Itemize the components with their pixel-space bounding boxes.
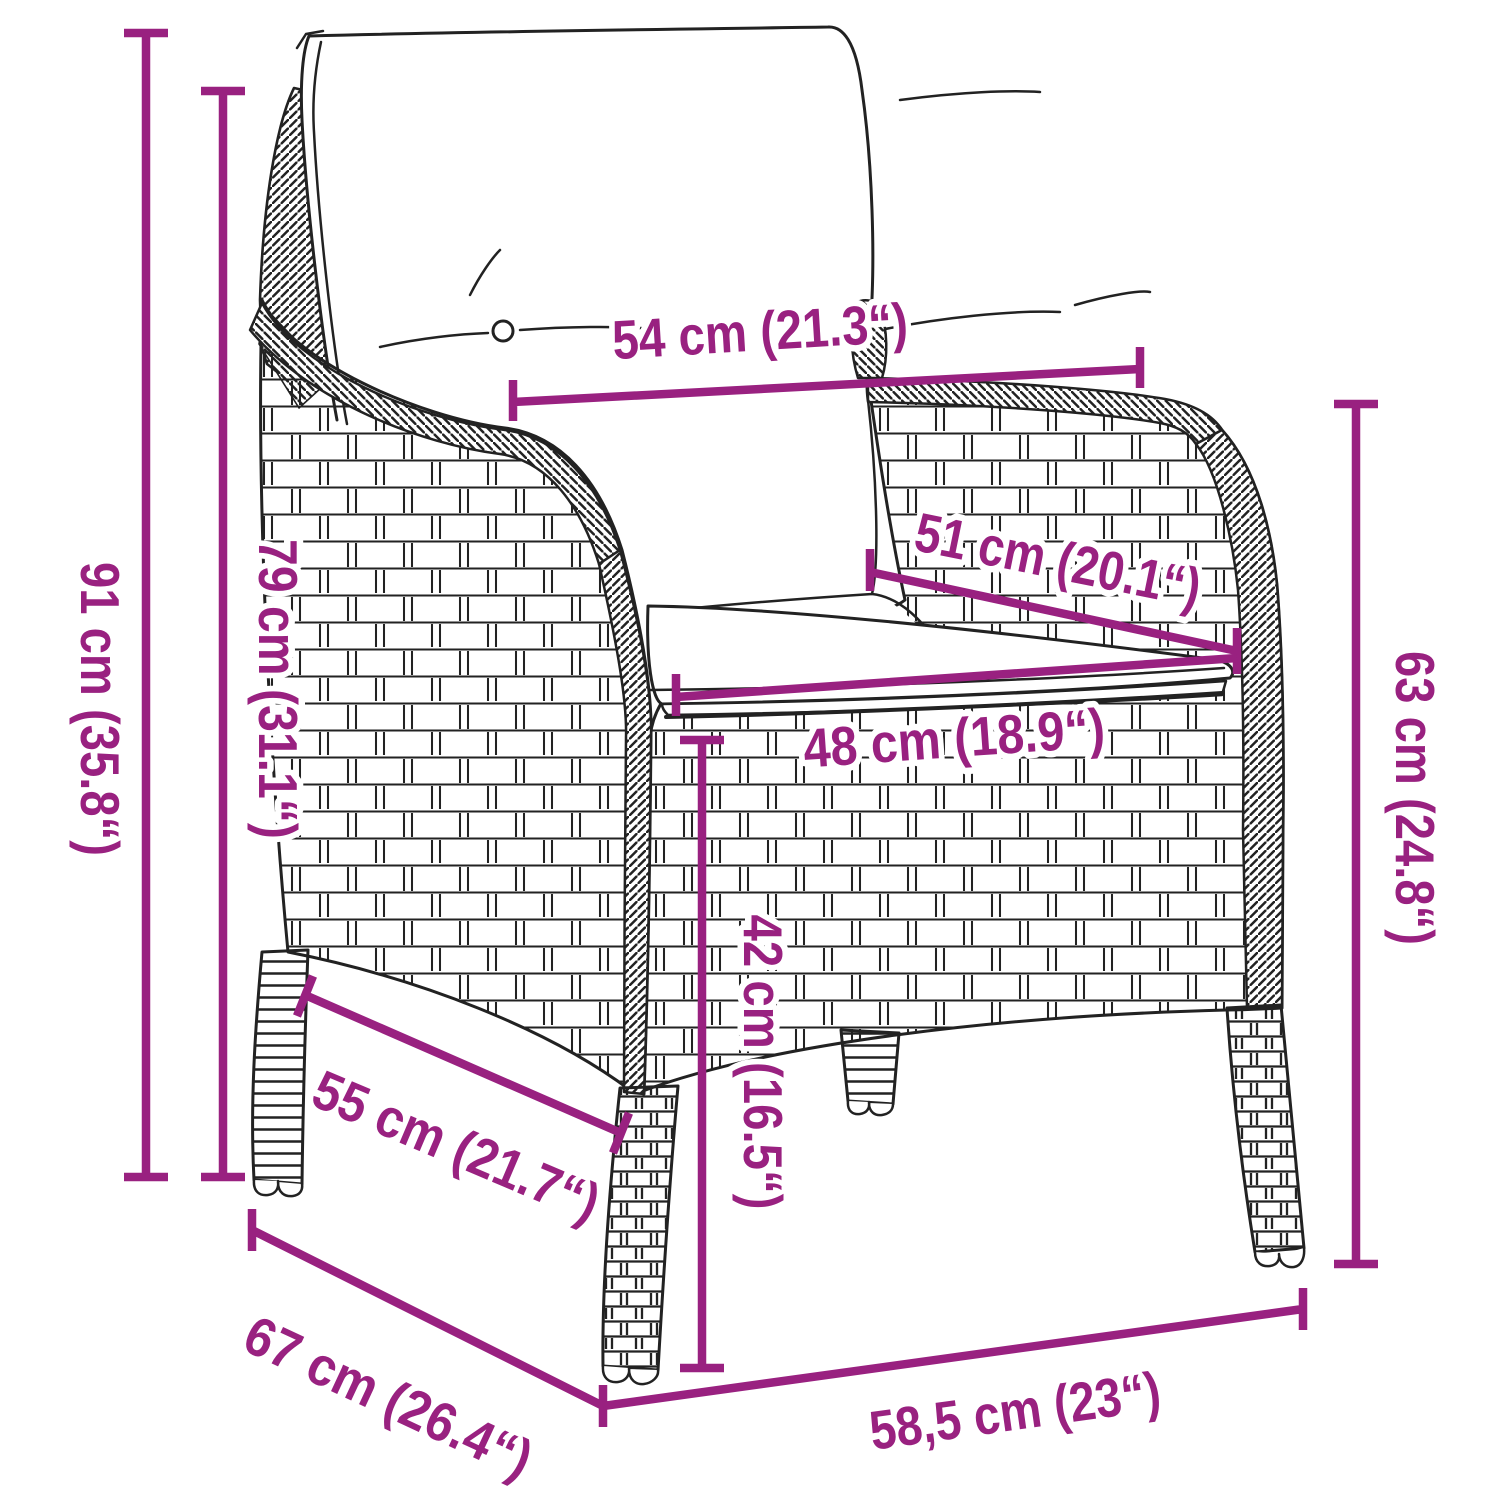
- svg-text:91 cm (35.8“): 91 cm (35.8“): [69, 562, 130, 856]
- svg-text:63 cm (24.8“): 63 cm (24.8“): [1384, 651, 1445, 945]
- svg-text:42 cm (16.5“): 42 cm (16.5“): [732, 915, 793, 1210]
- svg-text:79 cm (31.1“): 79 cm (31.1“): [247, 539, 309, 839]
